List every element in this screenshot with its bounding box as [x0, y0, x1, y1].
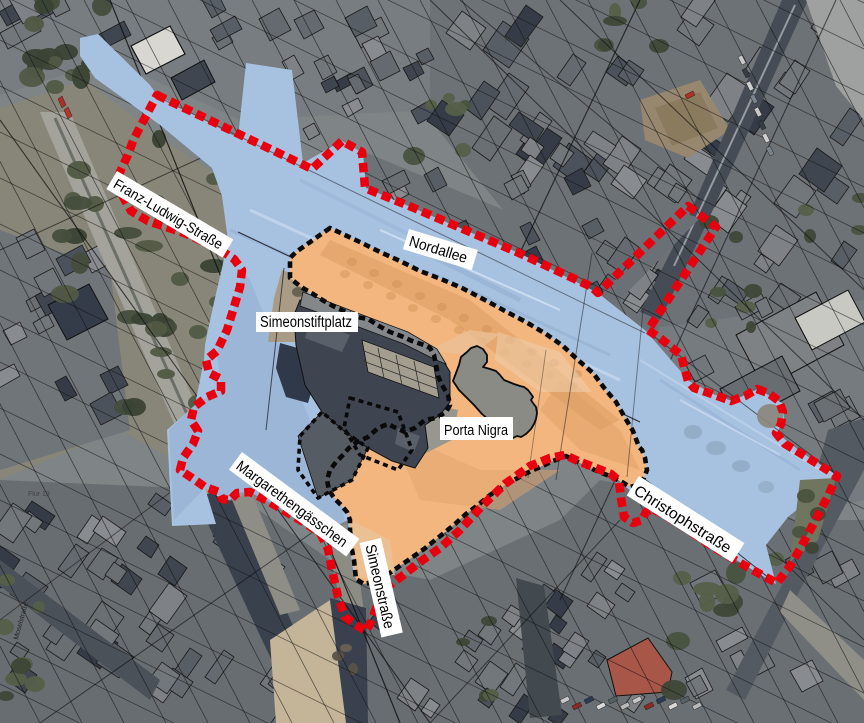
svg-text:Simeonstiftplatz: Simeonstiftplatz	[260, 314, 352, 331]
svg-text:Flur 30: Flur 30	[505, 36, 527, 44]
svg-text:Porta Nigra: Porta Nigra	[444, 422, 509, 439]
svg-text:Flur 19: Flur 19	[28, 491, 50, 498]
